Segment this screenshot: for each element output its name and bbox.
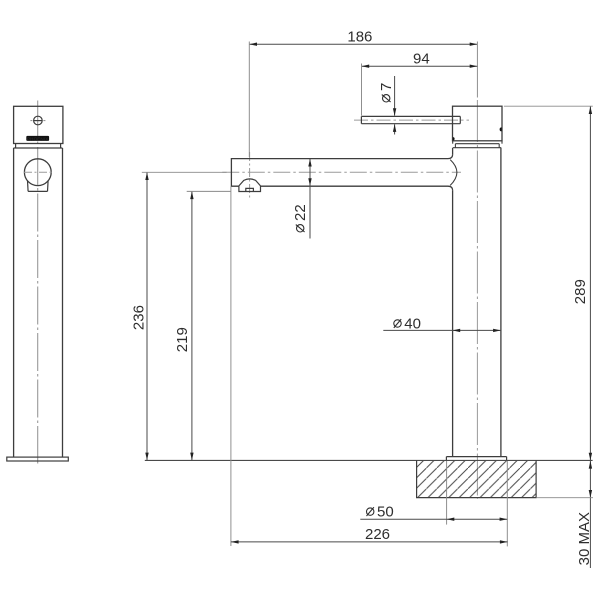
- svg-text:289: 289: [572, 279, 589, 304]
- svg-text:PHOENIX: PHOENIX: [27, 136, 48, 141]
- svg-text:7: 7: [378, 83, 395, 91]
- svg-text:22: 22: [292, 204, 309, 221]
- svg-text:236: 236: [131, 305, 148, 330]
- svg-text:50: 50: [377, 503, 394, 520]
- svg-text:94: 94: [413, 50, 430, 67]
- svg-text:219: 219: [174, 327, 191, 352]
- svg-text:30 MAX: 30 MAX: [576, 512, 593, 565]
- svg-text:40: 40: [404, 315, 421, 332]
- svg-text:226: 226: [365, 526, 390, 543]
- svg-text:186: 186: [347, 29, 372, 46]
